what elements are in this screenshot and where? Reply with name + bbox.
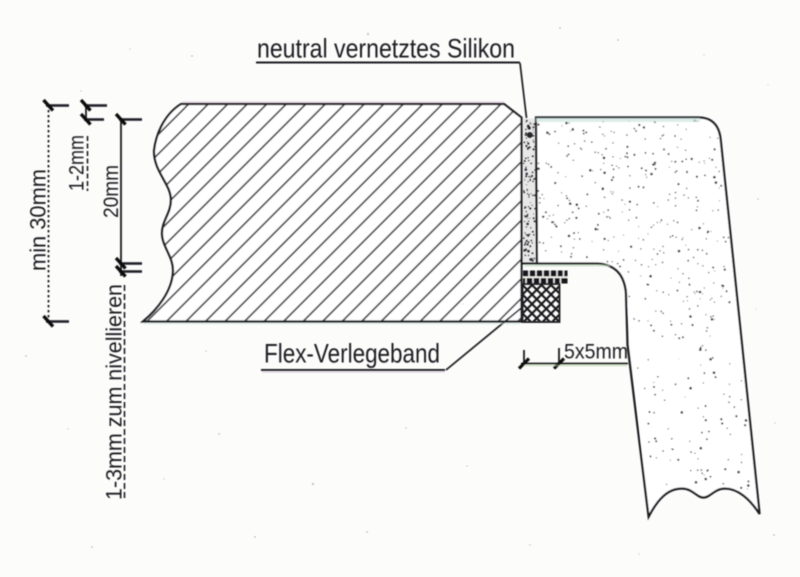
svg-text:min 30mm: min 30mm [26, 169, 51, 271]
svg-text:5x5mm: 5x5mm [564, 340, 628, 364]
svg-text:neutral vernetztes Silikon: neutral vernetztes Silikon [257, 34, 515, 64]
svg-text:1-2mm: 1-2mm [65, 135, 89, 191]
svg-text:Flex-Verlegeband: Flex-Verlegeband [264, 339, 440, 369]
svg-text:20mm: 20mm [99, 165, 123, 218]
svg-text:1-3mm zum nivellieren: 1-3mm zum nivellieren [102, 284, 127, 500]
